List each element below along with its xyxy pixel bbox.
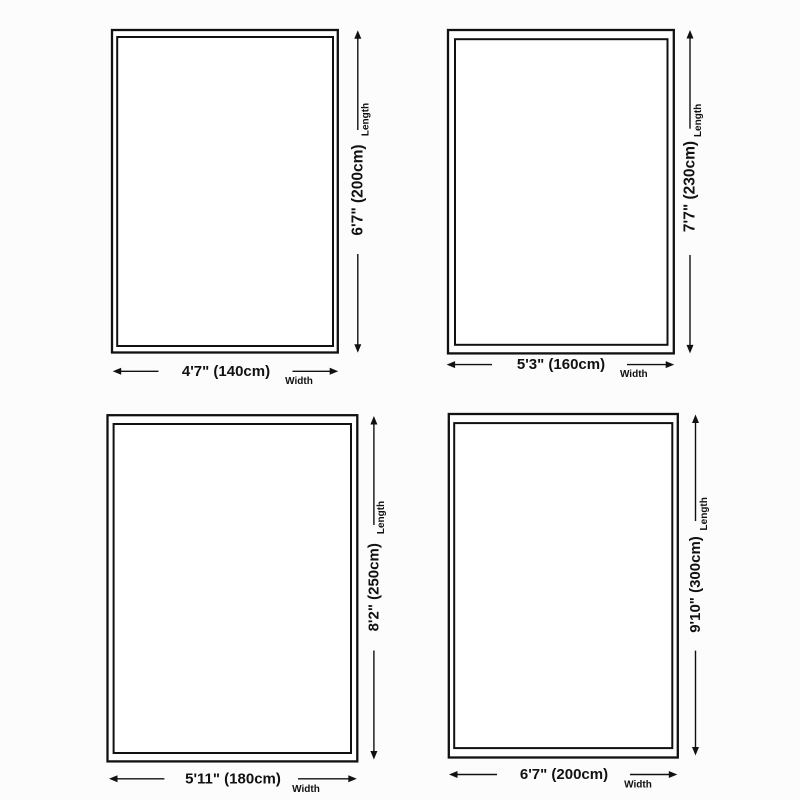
svg-text:6'7" (200cm): 6'7" (200cm) [349,144,366,235]
svg-text:8'2" (250cm): 8'2" (250cm) [365,543,382,631]
svg-text:6'7" (200cm): 6'7" (200cm) [520,766,608,783]
svg-text:Width: Width [285,376,313,387]
svg-text:5'3" (160cm): 5'3" (160cm) [517,356,605,373]
svg-text:4'7" (140cm): 4'7" (140cm) [182,363,270,380]
svg-text:Length: Length [376,501,387,534]
svg-text:Length: Length [699,497,710,530]
svg-text:Width: Width [624,780,652,791]
svg-text:Length: Length [360,103,371,136]
svg-text:Width: Width [620,369,648,380]
svg-text:7'7" (230cm): 7'7" (230cm) [682,141,699,232]
svg-text:9'10" (300cm): 9'10" (300cm) [687,536,704,633]
svg-text:Length: Length [693,104,704,137]
svg-text:5'11" (180cm): 5'11" (180cm) [185,770,281,787]
svg-text:Width: Width [292,784,320,795]
